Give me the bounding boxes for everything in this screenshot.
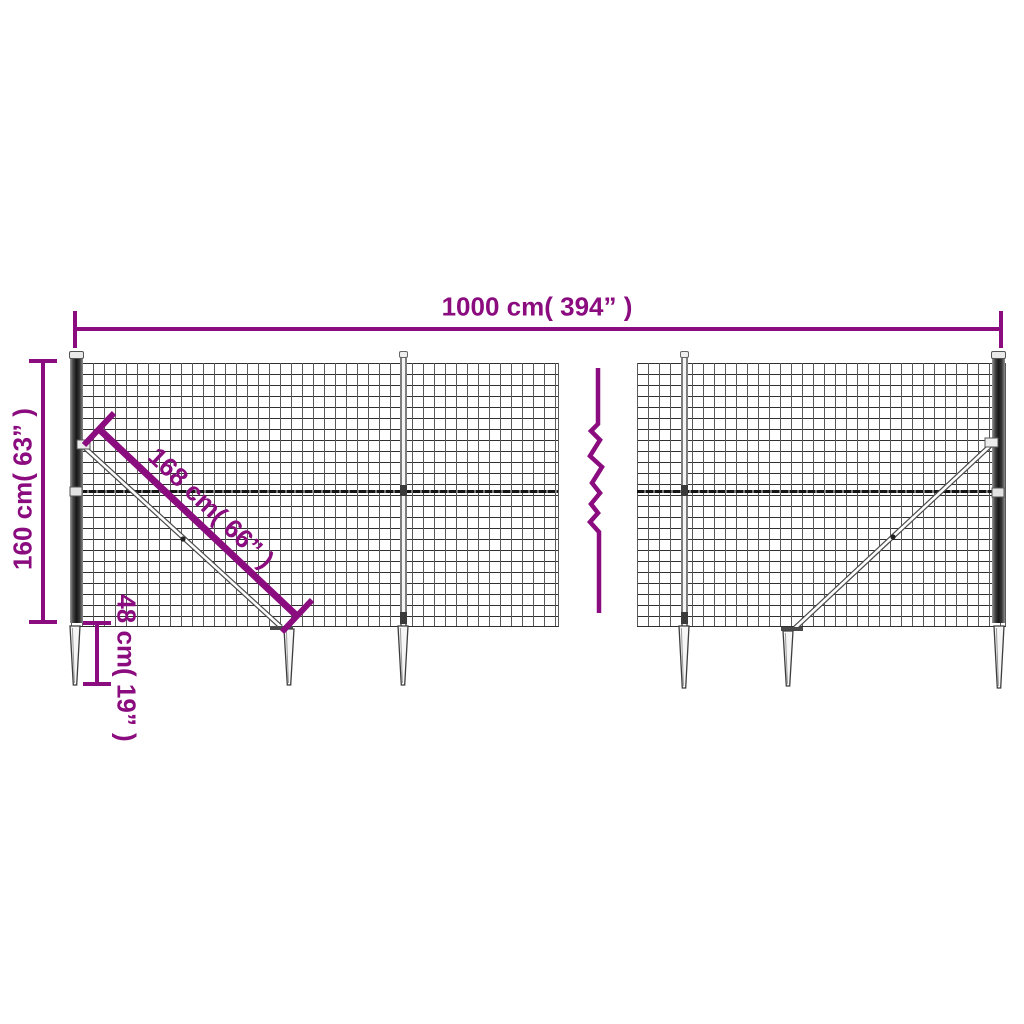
strut-joint-icon <box>180 536 185 541</box>
ground-anchor-spike <box>783 631 793 686</box>
wire-clamp-icon <box>681 485 688 496</box>
ground-anchor-spike <box>398 626 408 685</box>
dimension-end-tick <box>83 621 111 625</box>
dimension-end-tick <box>29 620 57 624</box>
dimension-line <box>41 361 45 622</box>
dimension-end-tick <box>999 311 1003 348</box>
wire-clamp-icon <box>992 488 1004 497</box>
dimension-line <box>99 429 297 616</box>
height-dimension-label: 160 cm( 63” ) <box>8 408 39 570</box>
support-strut-right <box>781 444 992 629</box>
wire-clamp-icon <box>70 487 82 496</box>
width-dimension-label: 1000 cm( 394” ) <box>442 292 633 323</box>
ground-anchor-spike <box>679 626 689 688</box>
ground-anchor-spikes <box>70 626 1004 688</box>
strut-bracket-icon <box>985 438 998 447</box>
ground-anchor-spike <box>994 626 1004 688</box>
fence-dimension-diagram: 1000 cm( 394” ) 160 cm( 63” ) 48 cm( 19”… <box>0 0 1024 1024</box>
dimension-line <box>75 327 1001 331</box>
diagram-overlay <box>0 0 1024 1024</box>
dimension-end-tick <box>73 311 77 348</box>
ground-anchor-spike <box>284 629 294 685</box>
continuation-break-line <box>590 368 602 613</box>
dimension-end-tick <box>83 682 111 686</box>
wire-clamp-icon <box>400 485 407 496</box>
post-base-fitting <box>681 612 688 624</box>
dimension-line <box>95 623 99 684</box>
anchor-depth-dimension-label: 48 cm( 19” ) <box>111 594 142 741</box>
strut-joint-icon <box>890 534 895 539</box>
dimension-end-tick <box>29 359 57 363</box>
post-base-fitting <box>400 612 407 624</box>
ground-anchor-spike <box>70 626 80 685</box>
